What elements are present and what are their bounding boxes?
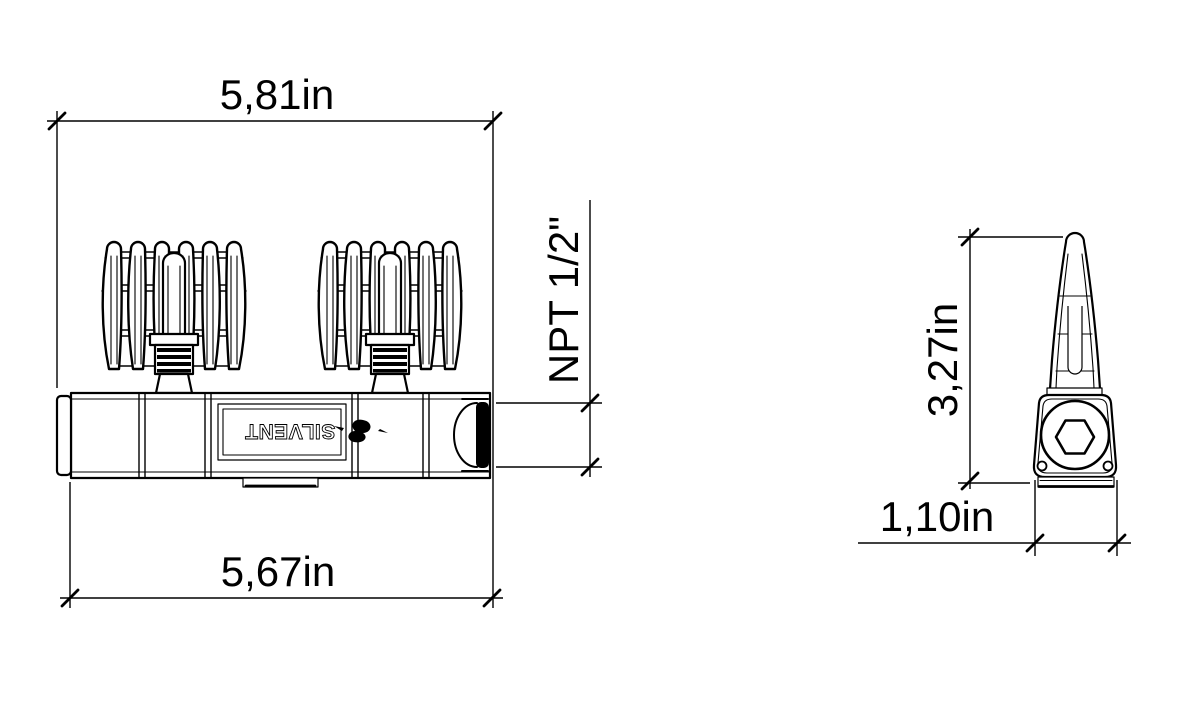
dimension-thread-extensions bbox=[496, 403, 602, 467]
left-end-cap bbox=[57, 396, 71, 475]
hex-socket bbox=[1056, 421, 1094, 454]
front-view: SILVENT bbox=[57, 242, 490, 487]
nozzle-head-left bbox=[102, 242, 246, 393]
dimension-thread-label: NPT 1/2" bbox=[540, 216, 587, 384]
outlet-slot bbox=[476, 402, 489, 468]
dimension-body-depth: 1,10in bbox=[858, 480, 1131, 556]
side-view bbox=[1034, 233, 1116, 487]
dimension-overall-height-label: 3,27in bbox=[919, 303, 966, 417]
side-nozzle-profile bbox=[1047, 233, 1102, 395]
dimension-body-depth-extensions bbox=[1035, 480, 1117, 556]
dimension-body-width-label: 5,67in bbox=[221, 548, 335, 595]
dimension-body-width: 5,67in bbox=[60, 482, 503, 608]
nozzle-head-right bbox=[318, 242, 462, 393]
screw-right bbox=[1104, 462, 1113, 471]
technical-drawing-canvas: SILVENT bbox=[0, 0, 1181, 708]
brand-label: SILVENT bbox=[245, 420, 336, 443]
side-nozzle-bore-slot bbox=[1068, 306, 1082, 374]
drawing-svg: SILVENT bbox=[0, 0, 1181, 708]
dimension-thread: NPT 1/2" bbox=[496, 200, 602, 477]
dimension-body-depth-label: 1,10in bbox=[880, 493, 994, 540]
screw-left bbox=[1038, 462, 1047, 471]
dimension-overall-width-label: 5,81in bbox=[220, 71, 334, 118]
